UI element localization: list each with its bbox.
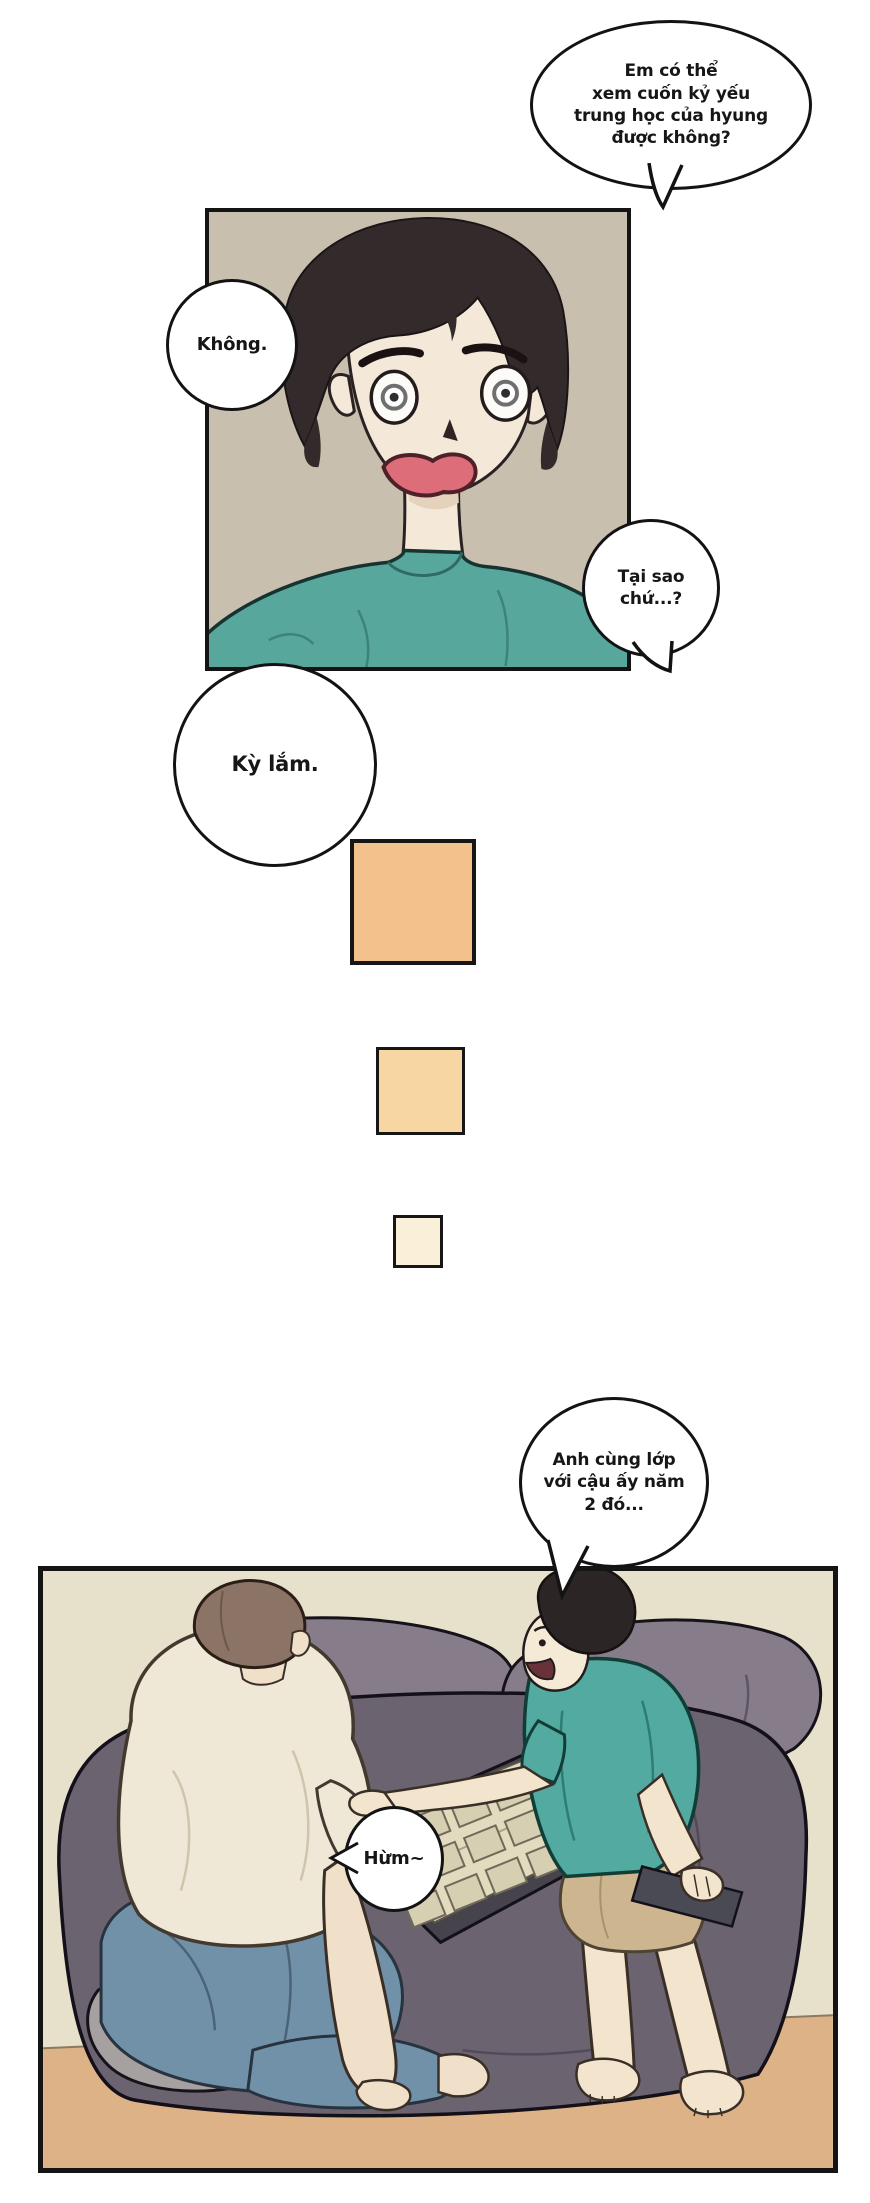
bubble-text-line: xem cuốn kỷ yếu	[592, 83, 750, 105]
older-brother-hair	[194, 1581, 305, 1668]
transition-square-2	[376, 1047, 465, 1135]
older-brother-ear	[291, 1631, 310, 1656]
comic-page: Em có thể xem cuốn kỷ yếu trung học của …	[0, 0, 870, 2203]
younger-brother-phone-hand	[681, 1868, 723, 1901]
panel-closeup	[205, 208, 631, 671]
bubble-text-line: Em có thể	[625, 60, 718, 82]
bubble-tail-left	[328, 1840, 360, 1876]
bubble-text-line: được không?	[612, 127, 731, 149]
bubble-text-line: Hừm~	[364, 1847, 425, 1871]
transition-square-1	[350, 839, 476, 965]
bubble-text-line: Kỳ lắm.	[231, 751, 318, 779]
bubble-text-line: Anh cùng lớp	[553, 1449, 676, 1471]
bubble-text-line: chứ...?	[620, 588, 682, 610]
bubble-text-line: 2 đó...	[584, 1494, 644, 1516]
panel1-illustration	[209, 212, 627, 667]
bubble-text-line: Không.	[197, 333, 267, 357]
speech-bubble-refusal: Không.	[166, 279, 298, 411]
bubble-text-line: với cậu ấy năm	[543, 1471, 684, 1493]
bubble-tail-curl	[630, 640, 676, 676]
bubble-tail-down-left	[540, 1538, 596, 1600]
younger-brother-eye	[539, 1639, 546, 1646]
speech-bubble-why: Tại sao chứ...?	[582, 519, 720, 657]
transition-square-3	[393, 1215, 443, 1268]
bubble-text-line: Tại sao	[618, 566, 685, 588]
speech-bubble-weird: Kỳ lắm.	[173, 663, 377, 867]
bubble-text-line: trung học của hyung	[574, 105, 768, 127]
bubble-tail-down	[646, 163, 686, 211]
